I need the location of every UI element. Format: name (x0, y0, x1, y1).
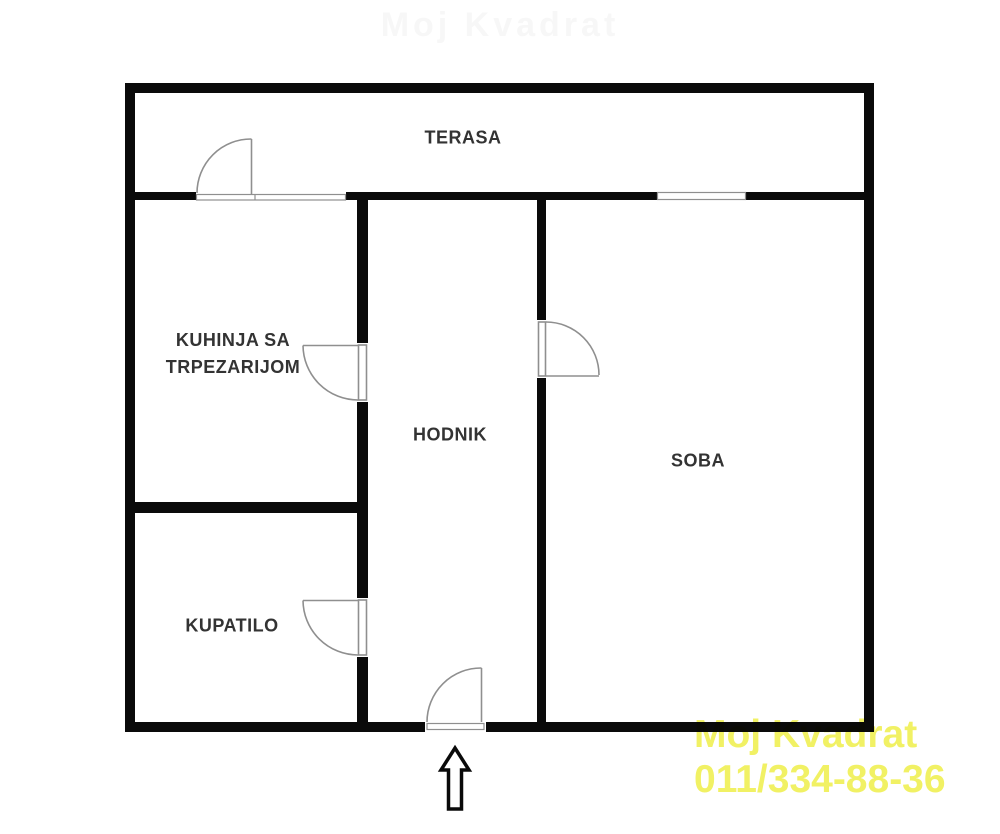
terrace-wall-seg-mid (346, 192, 657, 200)
floor-plan-drawing (0, 0, 1000, 834)
entrance-arrow-up-icon (441, 748, 469, 809)
wall-outer-right (864, 83, 874, 732)
wall-hallway-room-top (537, 200, 546, 320)
bathroom-door-arc (303, 601, 358, 656)
entry-door (427, 668, 482, 722)
room-label-kuhinja: KUHINJA SA TRPEZARIJOM (166, 327, 301, 381)
wall-kitchen-hallway-bottom (357, 657, 368, 722)
entry-door-sill (427, 724, 484, 730)
terrace-door (197, 139, 252, 194)
wall-outer-bottom-left (125, 722, 425, 732)
bathroom-door-panel (359, 600, 367, 655)
windows (197, 193, 746, 730)
room-label-kuhinja-line2: TRPEZARIJOM (166, 354, 301, 381)
terrace-wall-seg-right (746, 192, 864, 200)
terrace-opening-sill (197, 195, 346, 201)
room-label-kupatilo: KUPATILO (185, 616, 278, 637)
wall-kitchen-hallway-mid (357, 402, 368, 598)
wall-outer-top (125, 83, 874, 93)
wall-kitchen-hallway-top (357, 200, 368, 343)
room-label-terasa: TERASA (424, 128, 501, 149)
wall-hallway-room-bottom (537, 378, 546, 722)
kitchen-door (303, 345, 367, 400)
terrace-door-arc (197, 139, 252, 193)
agency-watermark-name: Moj Kvadrat (694, 712, 946, 757)
wall-kitchen-bathroom (135, 502, 368, 513)
kitchen-door-panel (359, 345, 367, 400)
terrace-wall-seg-left (135, 192, 196, 200)
entry-door-arc (427, 668, 482, 722)
room-door (539, 322, 600, 376)
wall-outer-left (125, 83, 135, 732)
room-label-kuhinja-line1: KUHINJA SA (166, 327, 301, 354)
bathroom-door (303, 600, 367, 655)
agency-watermark: Moj Kvadrat 011/334-88-36 (694, 712, 946, 802)
floor-plan-page: Moj Kvadrat (0, 0, 1000, 834)
interior-walls (135, 200, 546, 722)
room-terrace-window (658, 193, 746, 200)
room-door-panel (539, 322, 546, 376)
kitchen-door-arc (303, 346, 358, 401)
agency-watermark-phone: 011/334-88-36 (694, 757, 946, 802)
room-door-arc (546, 322, 599, 375)
room-label-soba: SOBA (671, 451, 725, 472)
room-label-hodnik: HODNIK (413, 425, 487, 446)
